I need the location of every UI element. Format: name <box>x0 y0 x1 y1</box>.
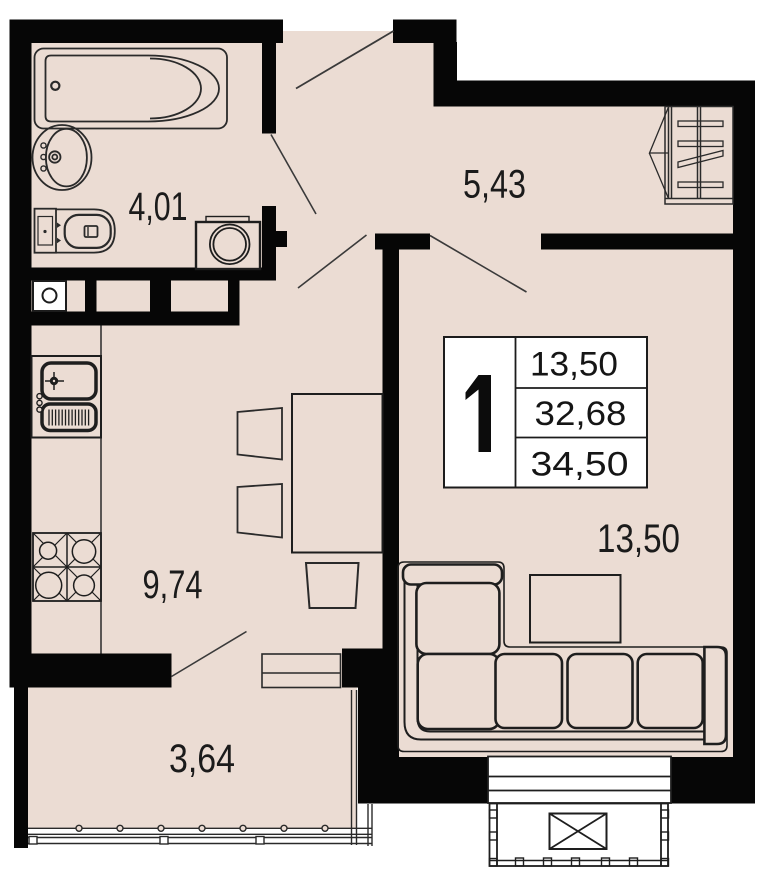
svg-text:4,01: 4,01 <box>129 185 188 229</box>
svg-text:13,50: 13,50 <box>597 517 680 561</box>
svg-text:13,50: 13,50 <box>530 346 618 384</box>
svg-text:34,50: 34,50 <box>531 446 629 484</box>
svg-text:9,74: 9,74 <box>143 563 203 607</box>
svg-text:32,68: 32,68 <box>535 395 627 433</box>
svg-text:5,43: 5,43 <box>463 163 526 207</box>
svg-text:3,64: 3,64 <box>169 737 235 781</box>
